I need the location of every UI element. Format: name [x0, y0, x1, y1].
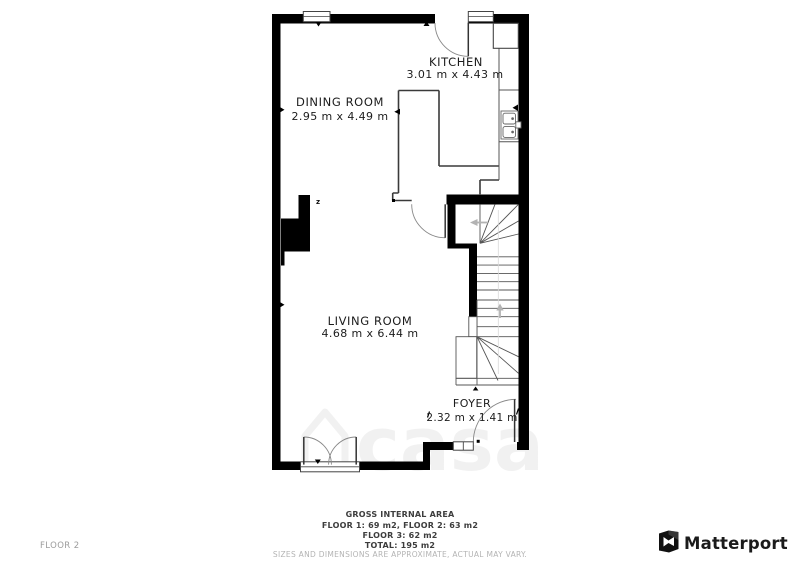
matterport-logo: Matterport [659, 531, 788, 554]
floor-label: FLOOR 2 [40, 541, 80, 551]
hall-door [412, 204, 446, 238]
floor-plan: casa [0, 0, 800, 566]
room-dim-kitchen: 3.01 m x 4.43 m [407, 68, 504, 81]
gross-area-line1: FLOOR 1: 69 m2, FLOOR 2: 63 m2 [322, 521, 478, 530]
room-dim-dining: 2.95 m x 4.49 m [292, 110, 389, 123]
room-dim-foyer: 2.32 m x 1.41 m [426, 412, 517, 424]
watermark-house-icon [305, 412, 345, 468]
matterport-wordmark: Matterport [684, 534, 788, 553]
matterport-icon [659, 531, 679, 553]
room-label-foyer: FOYER [453, 397, 491, 410]
gross-area-title: GROSS INTERNAL AREA [346, 510, 455, 519]
french-doors [301, 437, 360, 472]
kitchen-door-opening [435, 14, 468, 24]
room-dim-living: 4.68 m x 6.44 m [322, 327, 419, 340]
room-label-living: LIVING ROOM [328, 314, 413, 328]
gross-area-line2: FLOOR 3: 62 m2 [363, 531, 438, 540]
kitchen-door [435, 23, 468, 57]
floorplan-page: casa [0, 0, 800, 566]
window-top-left [303, 12, 330, 22]
room-label-dining: DINING ROOM [296, 95, 384, 109]
window-top-right [468, 12, 493, 22]
interior-walls [393, 91, 499, 201]
fridge [493, 23, 518, 48]
wall-note-z: z [316, 198, 320, 206]
sink [501, 111, 521, 139]
room-label-kitchen: KITCHEN [429, 55, 483, 69]
disclaimer: SIZES AND DIMENSIONS ARE APPROXIMATE, AC… [273, 550, 527, 559]
gross-area-line3: TOTAL: 195 m2 [365, 541, 435, 550]
staircase [456, 204, 519, 385]
